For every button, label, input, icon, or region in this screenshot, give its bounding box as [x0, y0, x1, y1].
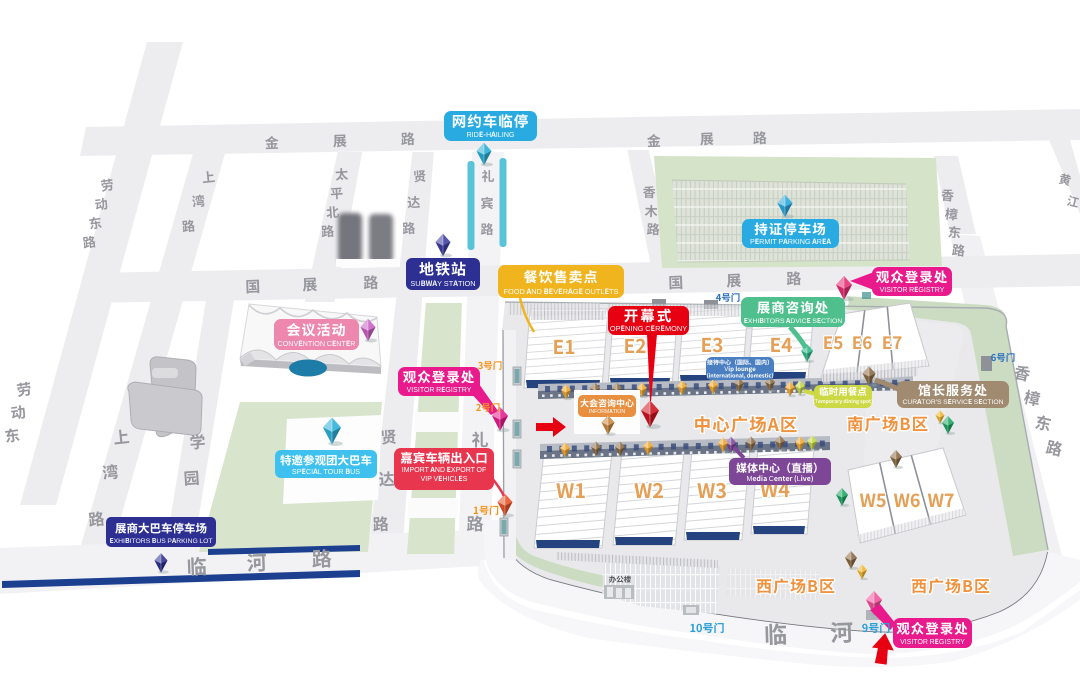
svg-text:E5: E5 [823, 329, 844, 354]
svg-text:EXHIBITORS BUS PARKING LOT: EXHIBITORS BUS PARKING LOT [109, 535, 212, 545]
svg-text:E4: E4 [770, 331, 793, 358]
svg-text:路: 路 [363, 272, 379, 294]
svg-text:路: 路 [320, 221, 334, 241]
svg-text:网约车临停: 网约车临停 [452, 111, 530, 132]
svg-text:太: 太 [334, 164, 348, 184]
svg-text:路: 路 [752, 128, 767, 148]
svg-text:金: 金 [264, 133, 279, 153]
svg-text:劳: 劳 [99, 174, 115, 195]
svg-text:路: 路 [87, 505, 105, 531]
svg-text:达: 达 [378, 466, 395, 491]
svg-text:路: 路 [311, 543, 332, 573]
svg-text:学: 学 [189, 428, 207, 453]
svg-text:路: 路 [402, 218, 416, 238]
svg-text:香: 香 [642, 182, 656, 201]
svg-text:W6: W6 [893, 487, 920, 513]
svg-text:(Temporary dining spot): (Temporary dining spot) [813, 398, 873, 405]
svg-text:路: 路 [951, 239, 966, 259]
svg-text:西广场B区: 西广场B区 [756, 573, 836, 597]
svg-text:中心广场A区: 中心广场A区 [694, 412, 799, 437]
svg-text:CONVENTION CENTER: CONVENTION CENTER [278, 339, 356, 349]
svg-text:礼: 礼 [481, 166, 494, 185]
svg-text:路: 路 [400, 129, 415, 149]
svg-text:VISITOR REGISTRY: VISITOR REGISTRY [880, 285, 945, 295]
svg-text:地铁站: 地铁站 [419, 259, 467, 280]
svg-text:持证停车场: 持证停车场 [754, 218, 827, 238]
svg-text:办公楼: 办公楼 [609, 574, 632, 585]
svg-text:2号门: 2号门 [476, 400, 501, 414]
svg-text:EXHIBITORS ADVICE SECTION: EXHIBITORS ADVICE SECTION [744, 315, 843, 325]
svg-text:展: 展 [302, 274, 318, 296]
svg-text:动: 动 [93, 193, 109, 214]
svg-text:SPECIAL TOUR BUS: SPECIAL TOUR BUS [292, 467, 360, 477]
svg-text:国: 国 [668, 272, 684, 294]
svg-text:展: 展 [726, 270, 742, 292]
svg-text:OPENING CEREMONY: OPENING CEREMONY [610, 323, 687, 334]
svg-text:贤: 贤 [413, 166, 427, 186]
svg-text:樟: 樟 [944, 203, 959, 223]
svg-text:路: 路 [372, 511, 389, 536]
svg-text:路: 路 [181, 215, 196, 235]
svg-text:嘉宾车辆出入口: 嘉宾车辆出入口 [400, 448, 488, 467]
svg-text:平: 平 [329, 183, 343, 203]
svg-text:劳: 劳 [15, 378, 33, 401]
svg-text:临: 临 [764, 616, 788, 651]
svg-text:E1: E1 [553, 333, 576, 360]
svg-text:CURATOR'S SERVICE SECTION: CURATOR'S SERVICE SECTION [902, 396, 1003, 406]
svg-text:1号门: 1号门 [473, 502, 499, 517]
svg-text:6号门: 6号门 [991, 350, 1016, 364]
svg-text:会议活动: 会议活动 [287, 320, 347, 340]
svg-text:9号门: 9号门 [862, 620, 891, 636]
svg-text:PERMIT PARKING AREA: PERMIT PARKING AREA [750, 237, 831, 247]
svg-text:西广场B区: 西广场B区 [911, 573, 991, 597]
svg-text:湾: 湾 [191, 190, 206, 210]
svg-text:临: 临 [186, 551, 207, 581]
svg-text:香: 香 [940, 184, 955, 204]
svg-text:RIDE-HAILING: RIDE-HAILING [466, 130, 514, 140]
svg-text:上: 上 [201, 166, 216, 186]
svg-text:VISITOR REGISTRY: VISITOR REGISTRY [900, 637, 965, 647]
svg-text:路: 路 [480, 219, 493, 238]
svg-text:W2: W2 [634, 475, 664, 504]
svg-text:E2: E2 [624, 332, 647, 359]
svg-text:东: 东 [87, 212, 103, 233]
svg-text:贤: 贤 [380, 424, 397, 449]
svg-text:河: 河 [246, 547, 267, 577]
svg-text:南广场B区: 南广场B区 [847, 411, 929, 435]
svg-text:园: 园 [183, 464, 201, 489]
svg-text:宾: 宾 [480, 193, 493, 212]
svg-text:达: 达 [407, 192, 421, 212]
svg-text:北: 北 [325, 202, 339, 222]
svg-text:临时用餐点: 临时用餐点 [819, 384, 867, 398]
svg-text:路: 路 [81, 231, 97, 252]
svg-text:W5: W5 [859, 487, 886, 513]
svg-text:10号门: 10号门 [690, 620, 725, 636]
svg-text:湾: 湾 [101, 458, 119, 484]
svg-text:上: 上 [112, 423, 130, 449]
svg-text:W3: W3 [697, 475, 727, 504]
svg-text:VIP VEHICLES: VIP VEHICLES [421, 474, 468, 484]
svg-text:观众登录处: 观众登录处 [403, 366, 476, 386]
svg-text:河: 河 [830, 614, 854, 649]
svg-text:VISITOR REGISTRY: VISITOR REGISTRY [407, 385, 472, 395]
svg-text:E6: E6 [852, 329, 873, 354]
svg-text:餐饮售卖点: 餐饮售卖点 [524, 267, 599, 287]
svg-text:展: 展 [332, 131, 347, 151]
svg-text:W7: W7 [927, 487, 954, 513]
svg-text:木: 木 [644, 201, 658, 220]
svg-text:E3: E3 [701, 331, 724, 358]
svg-text:W1: W1 [556, 475, 586, 504]
svg-text:E7: E7 [882, 329, 903, 354]
svg-text:金: 金 [646, 131, 661, 151]
svg-text:INFORMATION: INFORMATION [589, 408, 625, 415]
svg-text:东: 东 [3, 424, 21, 447]
svg-text:观众登录处: 观众登录处 [896, 618, 969, 638]
svg-text:3号门: 3号门 [478, 358, 503, 372]
svg-text:观众登录处: 观众登录处 [876, 266, 949, 286]
svg-text:路: 路 [786, 268, 802, 290]
svg-text:展商咨询处: 展商咨询处 [757, 297, 830, 317]
svg-text:SUBWAY STATION: SUBWAY STATION [410, 278, 475, 289]
svg-text:展: 展 [699, 129, 714, 149]
svg-text:FOOD AND BEVERAGE OUTLETS: FOOD AND BEVERAGE OUTLETS [504, 286, 619, 297]
svg-text:(international, domestic): (international, domestic) [707, 372, 774, 380]
svg-text:动: 动 [9, 401, 27, 424]
svg-text:路: 路 [646, 219, 660, 238]
svg-text:4号门: 4号门 [716, 290, 741, 304]
svg-text:Media Center (Live): Media Center (Live) [747, 474, 814, 484]
svg-text:国: 国 [245, 276, 261, 298]
